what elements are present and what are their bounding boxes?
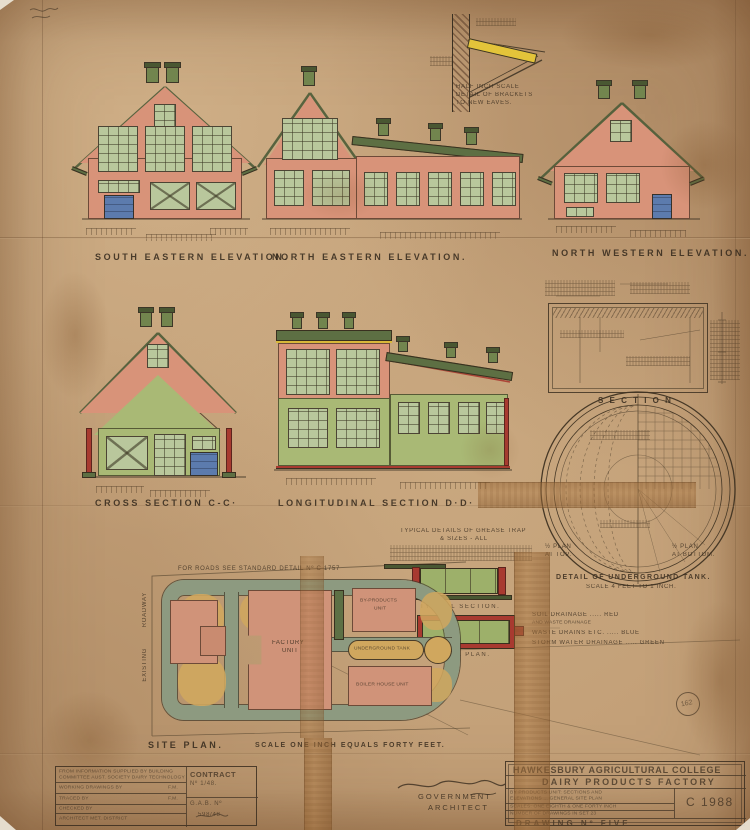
roof-band: [276, 330, 392, 341]
site-underground-tank-circle: [424, 636, 452, 664]
roof-ventilator: [161, 311, 173, 327]
window: [98, 126, 138, 172]
window: [492, 172, 516, 206]
window: [336, 349, 380, 395]
caption-section: S E C T I O N: [598, 396, 673, 405]
roof-ventilator: [318, 316, 328, 329]
glazed-double-door: [154, 434, 186, 476]
underground-tank-label: UNDERGROUND TANK: [354, 646, 410, 651]
attic-window: [147, 344, 169, 368]
attic-window: [610, 120, 632, 142]
boiler-house-label: BOILER HOUSE UNIT: [356, 682, 409, 687]
caption-north-western-elevation: NORTH WESTERN ELEVATION.: [552, 248, 749, 258]
roof-ventilator: [146, 66, 159, 83]
window: [288, 408, 328, 448]
gab-number: 598/48: [198, 812, 221, 818]
drawing-description: BY PRODUCTS UNIT: SECTIONS AND: [510, 790, 602, 795]
illegible-annotations: [590, 430, 650, 440]
door: [652, 194, 672, 219]
illegible-annotations: [476, 18, 516, 26]
caption-longitudinal-section: LONGITUDINAL SECTION D·D·: [278, 498, 475, 508]
roof-ventilator: [598, 84, 610, 99]
drawing-number: DRAWING Nº FIVE: [516, 819, 631, 828]
government-architect-label: GOVERNMENT: [418, 792, 492, 801]
legend-line: SOIL DRAINAGE ..... RED: [532, 612, 619, 618]
caption-south-eastern-elevation: SOUTH EASTERN ELEVATION.: [95, 252, 290, 262]
grease-trap-title: TYPICAL DETAILS OF GREASE TRAP: [400, 528, 526, 534]
traced-by: F.M.: [168, 796, 178, 801]
half-plan-bottom-label: AT BOTTOM.: [672, 552, 715, 558]
caption-site-plan: SITE PLAN.: [148, 740, 224, 750]
braced-window: [196, 182, 236, 210]
dimension-marks: [556, 226, 616, 233]
window: [145, 126, 185, 172]
site-plan-scale: SCALE ONE INCH EQUALS FORTY FEET.: [255, 742, 445, 749]
bracket-detail-caption: TO NEW EAVES.: [456, 100, 512, 106]
illegible-annotations: [600, 520, 650, 528]
window: [98, 180, 140, 193]
green-strip: [334, 590, 344, 640]
half-plan-bottom-label: ½ PLAN: [672, 544, 699, 550]
by-products-label: UNIT: [374, 606, 386, 611]
roof-ventilator: [430, 127, 441, 141]
factory-unit-label: FACTORY: [272, 640, 304, 646]
site-building-left-annex: [200, 626, 226, 656]
roof-ventilator: [634, 84, 646, 99]
inner-roof: [94, 372, 222, 435]
roof-ventilator: [466, 131, 477, 145]
tank-detail-caption: DETAIL OF UNDERGROUND TANK.: [556, 574, 711, 581]
roof-ventilator: [378, 122, 389, 136]
checked-row: CHECKED BY: [59, 806, 93, 811]
left-road: [224, 592, 239, 708]
braced-window: [150, 182, 190, 210]
window: [286, 349, 330, 395]
by-products-label: BY-PRODUCTS: [360, 598, 397, 603]
gab-label: G.A.B. Nº: [190, 801, 222, 807]
contract-number: Nº 1/48.: [190, 781, 217, 787]
window: [606, 173, 640, 203]
window: [398, 402, 420, 434]
red-column: [86, 428, 92, 474]
roof-ventilator: [488, 351, 498, 363]
tank-detail-scale: SCALE 4 FEET TO 1 INCH.: [586, 584, 676, 590]
sliding-door: [190, 452, 218, 476]
bracket-detail-caption: DETAIL OF BRACKETS: [456, 92, 533, 98]
title-block-right: HAWKESBURY AGRICULTURAL COLLEGE DAIRY PR…: [505, 761, 745, 826]
source-note: COMMITTEE AUST. SOCIETY DAIRY TECHNOLOGY: [59, 775, 185, 780]
window: [458, 402, 480, 434]
roof-ventilator: [398, 340, 408, 352]
window: [428, 172, 452, 206]
factory-title: DAIRY PRODUCTS FACTORY: [542, 777, 716, 787]
window: [192, 436, 216, 450]
dimension-marks: [400, 482, 490, 489]
red-base-line: [276, 466, 510, 469]
red-column: [226, 428, 232, 474]
illegible-annotations: [710, 320, 740, 380]
window: [564, 173, 598, 203]
grease-trap-subtitle: & SIZES - ALL: [440, 536, 488, 542]
stamp-number: 162: [680, 699, 693, 708]
window: [566, 207, 594, 217]
illegible-annotations: [630, 282, 690, 294]
window: [336, 408, 380, 448]
source-note: FROM INFORMATION SUPPLIED BY BUILDING: [59, 769, 173, 774]
traced-row: TRACED BY: [59, 796, 89, 801]
vertical-label-existing: EXISTING: [142, 648, 148, 682]
bracket-detail-caption: HALF INCH SCALE: [456, 84, 520, 90]
red-column: [504, 398, 509, 466]
window: [428, 402, 450, 434]
architectural-drawing-sheet: HALF INCH SCALE DETAIL OF BRACKETS TO NE…: [0, 0, 750, 830]
window: [192, 126, 232, 172]
roof-ventilator: [344, 316, 354, 329]
sand-patch: [420, 592, 452, 630]
dimension-marks: [210, 228, 248, 235]
plan-code: C 1988: [686, 795, 734, 809]
set-count-row: NUMBER OF DRAWINGS IN SET 23: [510, 811, 596, 816]
legend-line: STORM WATER DRAINAGE ..... GREEN: [532, 640, 665, 646]
dimension-marks: [270, 228, 350, 235]
footing: [222, 472, 236, 478]
dimension-marks: [146, 234, 216, 241]
half-plan-top-label: ½ PLAN: [545, 544, 572, 550]
window: [312, 170, 350, 206]
illegible-annotations: [626, 356, 690, 366]
drawing-description: ELEVATIONS ... GENERAL SITE PLAN: [510, 796, 602, 801]
factory-unit-label: UNIT: [282, 648, 298, 654]
vertical-label-roadway: ROADWAY: [142, 592, 148, 627]
trap-plan-outlet: [514, 626, 524, 636]
half-plan-top-label: AT TOP.: [545, 552, 572, 558]
roof-ventilator: [140, 311, 152, 327]
window: [396, 172, 420, 206]
trap-section-red-wall: [498, 567, 506, 595]
legend-line: WASTE DRAINS ETC. ..... BLUE: [532, 630, 640, 636]
hatch-band: [553, 308, 703, 318]
scales-row: SCALES: ONE EIGHTH & ONE FORTY INCH: [510, 804, 616, 809]
caption-cross-section: CROSS SECTION C-C·: [95, 498, 238, 508]
roof-ventilator: [446, 346, 456, 358]
footing: [82, 472, 96, 478]
college-title: HAWKESBURY AGRICULTURAL COLLEGE: [513, 765, 721, 775]
braced-window: [106, 436, 148, 470]
government-architect-label: ARCHITECT: [428, 803, 489, 812]
dimension-marks: [286, 478, 376, 485]
roof-ventilator: [292, 316, 302, 329]
dimension-marks: [380, 232, 500, 239]
roof-ventilator: [303, 70, 315, 86]
section-frame-inner: [552, 307, 704, 389]
window: [364, 172, 388, 206]
illegible-size-table: [390, 545, 532, 561]
caption-north-eastern-elevation: NORTH EASTERN ELEVATION.: [272, 252, 467, 262]
working-drawings-by: F.M.: [168, 785, 178, 790]
working-drawings-row: WORKING DRAWINGS BY: [59, 785, 122, 790]
architect-row: ARCHITECT MET. DISTRICT: [59, 816, 127, 821]
dimension-marks: [150, 490, 210, 497]
door: [104, 195, 134, 219]
roads-note: FOR ROADS SEE STANDARD DETAIL Nº C 1757: [178, 566, 340, 572]
illegible-annotations: [545, 280, 615, 296]
window: [274, 170, 304, 206]
illegible-annotations: [560, 330, 624, 338]
illegible-annotations: [430, 56, 452, 66]
dimension-marks: [86, 228, 136, 235]
window: [460, 172, 484, 206]
dimension-marks: [96, 486, 144, 493]
window: [282, 118, 338, 160]
roof-ventilator: [166, 66, 179, 83]
dimension-marks: [630, 230, 686, 237]
legend-line: AND WASTE DRAINAGE: [532, 620, 591, 625]
title-block-left: FROM INFORMATION SUPPLIED BY BUILDING CO…: [55, 766, 257, 826]
contract-label: CONTRACT: [190, 770, 236, 779]
